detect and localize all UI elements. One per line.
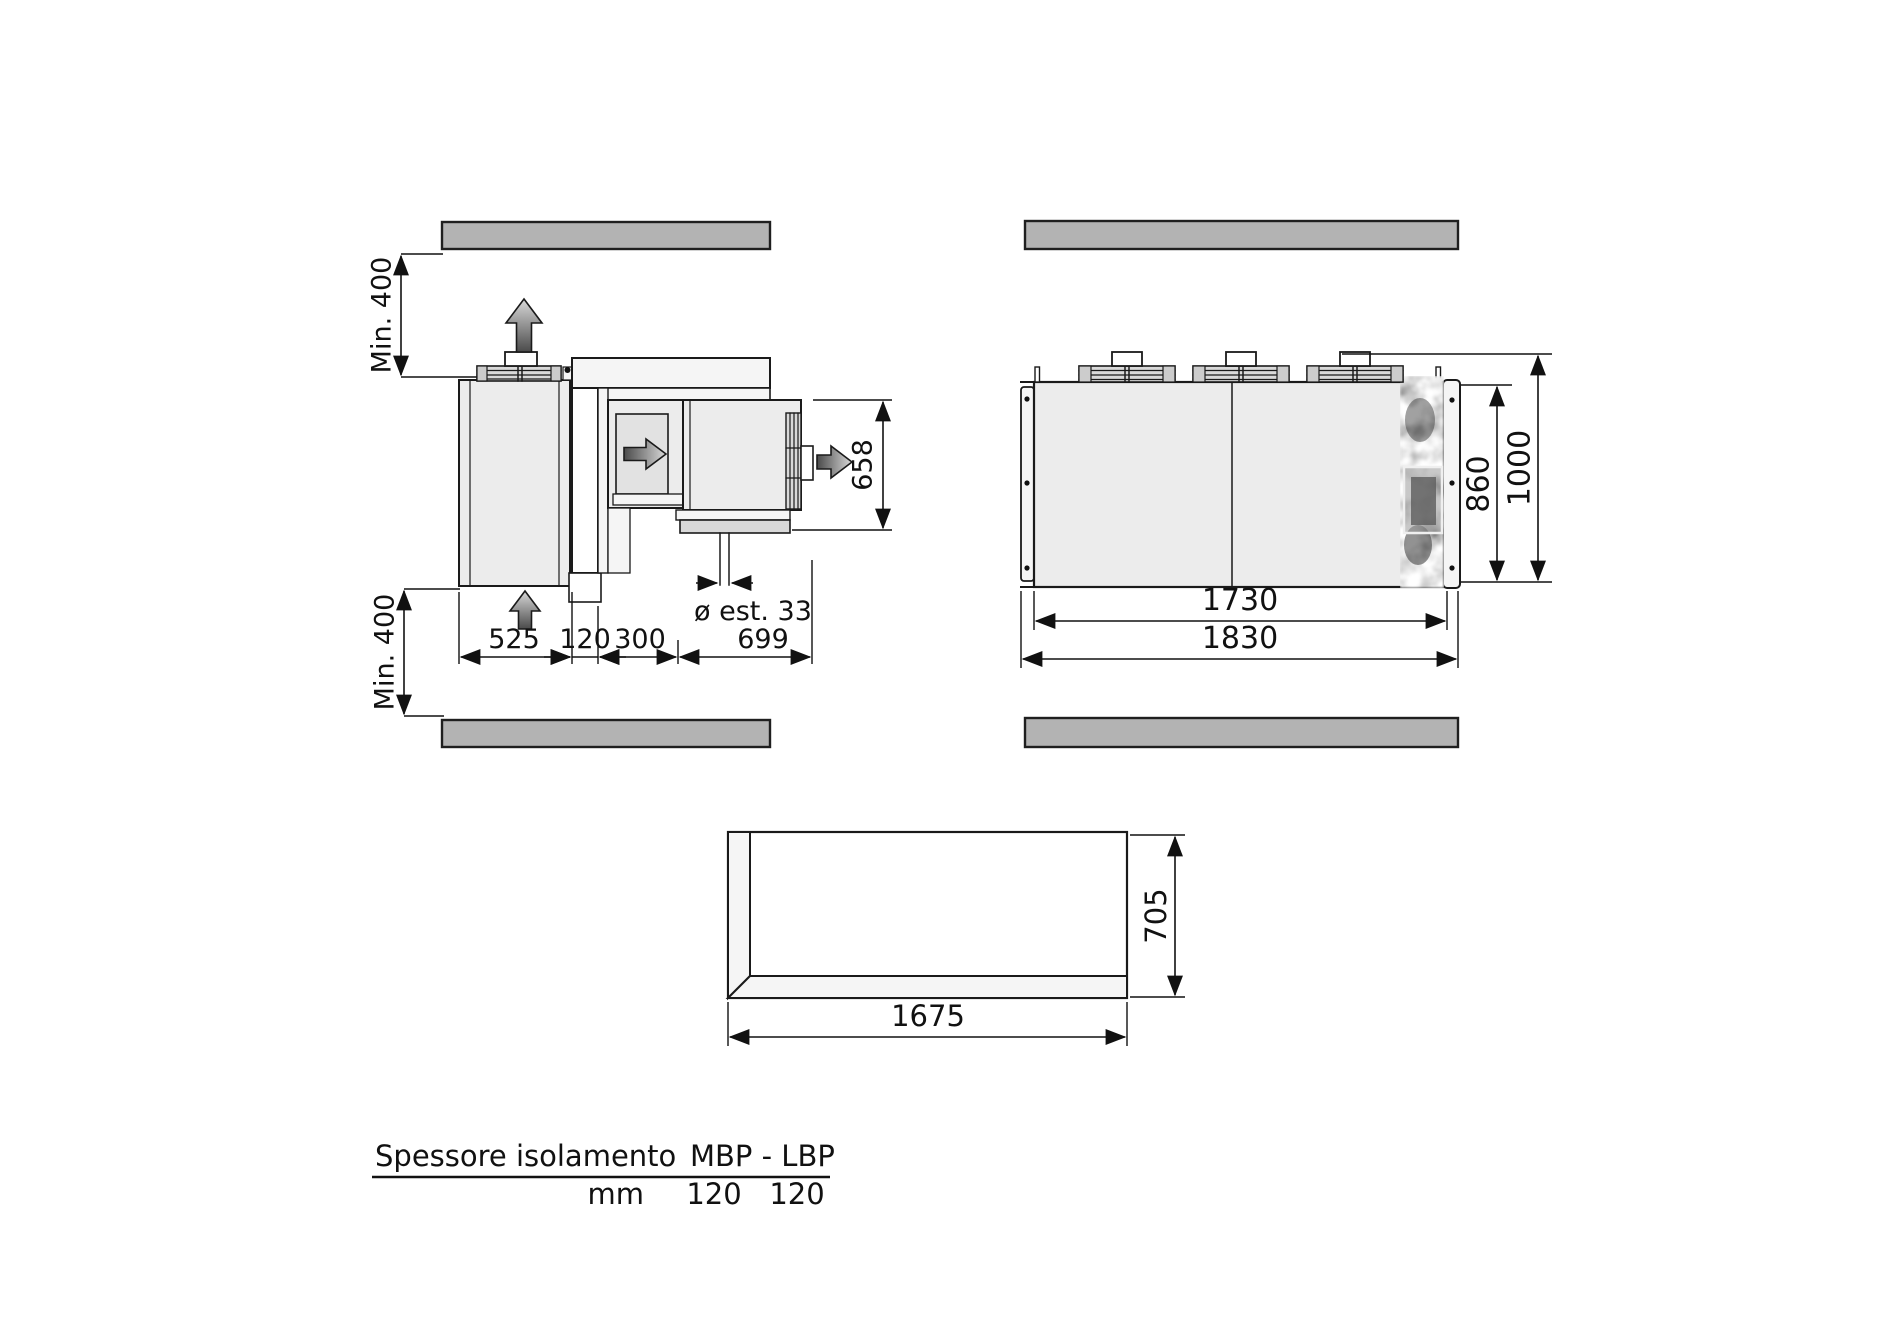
drawing-page: Min. 400 Min. 400	[0, 0, 1890, 1336]
floor-bar	[442, 720, 770, 747]
condensate-tray	[676, 510, 790, 533]
table-header-right: MBP - LBP	[690, 1139, 835, 1173]
duct-section	[608, 400, 683, 573]
condenser-grille	[786, 413, 813, 509]
drain-pipe	[720, 533, 729, 585]
dim-inner-width-label: 1730	[1202, 583, 1278, 618]
opening-left-strip	[728, 832, 750, 998]
dim-evaporator-depth: 525	[488, 624, 540, 655]
dim-drain: ø est. 33	[694, 583, 812, 627]
side-view: Min. 400 Min. 400	[367, 222, 893, 747]
dim-opening-height: 705	[1130, 835, 1185, 997]
dim-outer-width-label: 1830	[1202, 621, 1278, 656]
evaporator-grille	[477, 352, 572, 381]
dim-overall-depth-label: 1000	[1503, 430, 1538, 506]
insulation-table: Spessore isolamento MBP - LBP mm 120 120	[372, 1139, 835, 1211]
fan-grille-3	[1307, 352, 1403, 382]
dim-opening-width: 1675	[728, 999, 1127, 1046]
plan-view: 860 1000 1730 1830	[1021, 221, 1552, 747]
dim-wall-thickness: 120	[559, 624, 611, 655]
dim-clearance-bottom: Min. 400	[370, 589, 461, 716]
table-unit-label: mm	[588, 1177, 645, 1211]
table-mbp-value: 120	[686, 1177, 741, 1211]
fan-grille-2	[1193, 352, 1289, 382]
technical-drawing: Min. 400 Min. 400	[0, 0, 1890, 1336]
dim-unit-height-label: 658	[848, 439, 879, 491]
dim-body-depth-label: 860	[1462, 455, 1497, 512]
plan-wall-bar-top	[1025, 221, 1458, 249]
wall-opening-view: 705 1675	[728, 832, 1185, 1046]
dim-clearance-top: Min. 400	[367, 254, 482, 377]
dim-duct-depth: 300	[614, 624, 666, 655]
drain-label: ø est. 33	[694, 596, 812, 627]
evaporator-section	[459, 299, 572, 629]
plan-unit-body	[1021, 352, 1460, 588]
dim-opening-height-label: 705	[1139, 888, 1173, 943]
cold-room-wall	[569, 388, 601, 602]
fan-grille-1	[1079, 352, 1175, 382]
plan-wall-bar-bottom	[1025, 718, 1458, 747]
table-header-left: Spessore isolamento	[375, 1139, 676, 1173]
opening-bottom-strip	[728, 976, 1127, 998]
airflow-up-arrow	[506, 299, 542, 352]
condenser-section	[676, 400, 852, 585]
coil-texture	[1402, 386, 1442, 578]
dim-condenser-depth: 699	[737, 624, 789, 655]
dim-opening-width-label: 1675	[891, 999, 965, 1033]
ceiling-bar	[442, 222, 770, 249]
pin-left	[1035, 367, 1040, 382]
clearance-top-label: Min. 400	[367, 257, 398, 374]
fan-grilles	[1079, 352, 1403, 382]
pin-right	[1436, 367, 1441, 382]
table-lbp-value: 120	[769, 1177, 824, 1211]
clearance-bottom-label: Min. 400	[370, 594, 401, 711]
